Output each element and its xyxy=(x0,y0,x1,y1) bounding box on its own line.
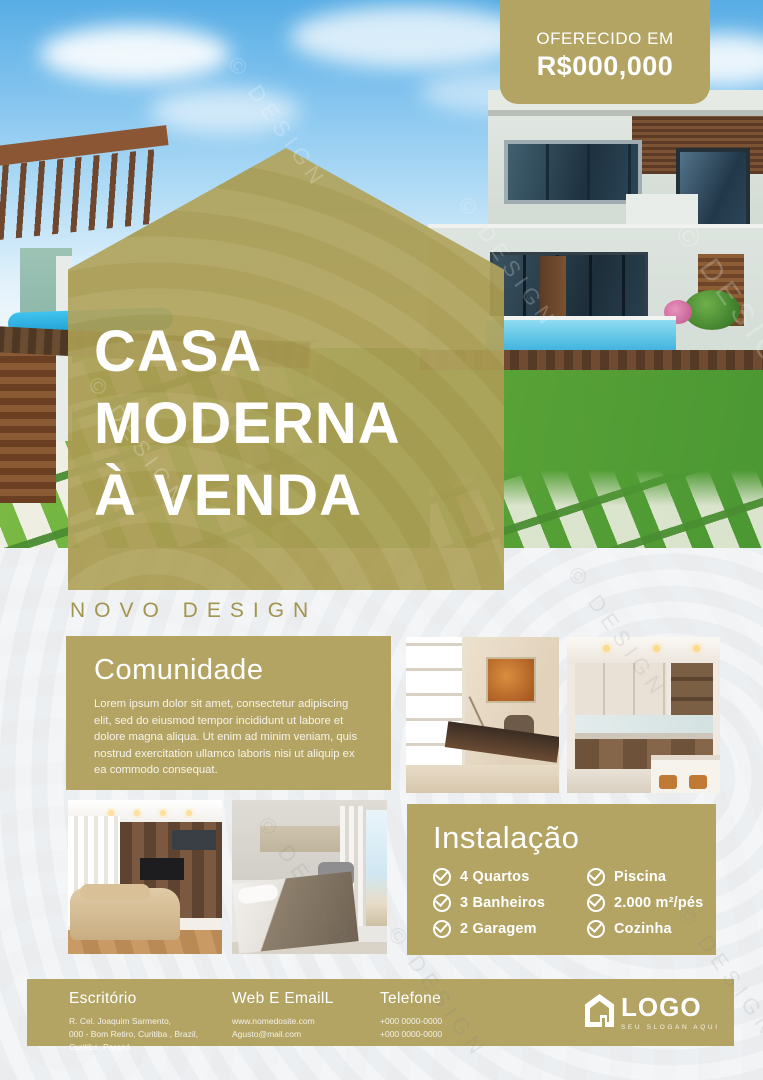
spotlight xyxy=(134,810,140,816)
ceiling-light xyxy=(603,645,610,652)
open-shelves xyxy=(671,663,713,721)
ceiling-light xyxy=(693,645,700,652)
bush xyxy=(684,290,740,330)
section-label: NOVO DESIGN xyxy=(70,599,317,623)
logo-text: LOGO SEU SLOGAN AQUI xyxy=(621,994,720,1031)
website-url: www.nomedosite.com xyxy=(232,1015,334,1028)
footer-contact-bar: Escritório R. Cel. Joaquim Sarmento, 000… xyxy=(27,979,734,1046)
logo-name: LOGO xyxy=(621,994,720,1020)
office-photo xyxy=(406,637,559,793)
phone-number: +000 0000-0000 xyxy=(380,1015,442,1028)
cloud xyxy=(150,88,300,134)
feature-list: 4 Quartos 3 Banheiros 2 Garagem Piscina xyxy=(433,868,716,938)
floor xyxy=(406,765,559,793)
logo-slogan: SEU SLOGAN AQUI xyxy=(621,1024,720,1031)
check-icon xyxy=(433,894,451,912)
cloud xyxy=(40,26,230,82)
footer-phone-column: Telefone +000 0000-0000 +000 0000-0000 xyxy=(380,990,442,1041)
office-address-line: R. Cel. Joaquim Sarmento, xyxy=(69,1015,198,1028)
price-badge: OFERECIDO EM R$000,000 xyxy=(500,0,710,104)
check-icon xyxy=(587,894,605,912)
kitchen-photo xyxy=(567,637,720,793)
spotlight xyxy=(186,810,192,816)
pergola-slats xyxy=(0,149,161,240)
feature-item: Cozinha xyxy=(587,920,703,938)
living-room-photo xyxy=(68,800,222,954)
comunidade-title: Comunidade xyxy=(94,654,363,687)
feature-item: 4 Quartos xyxy=(433,868,561,886)
balcony-window xyxy=(366,810,387,926)
email-address: Agusto@mail.com xyxy=(232,1028,334,1041)
check-icon xyxy=(433,920,451,938)
house-logo-icon xyxy=(585,994,614,1027)
feature-label: 2.000 m²/pés xyxy=(614,895,703,911)
sofa-cushions xyxy=(80,884,150,900)
bar-stool xyxy=(689,775,707,789)
backsplash xyxy=(575,715,713,733)
footer-web-title: Web E EmailL xyxy=(232,990,334,1008)
instalacao-title: Instalação xyxy=(433,820,716,856)
real-estate-flyer: CASA MODERNA À VENDA OFERECIDO EM R$000,… xyxy=(0,0,763,1080)
feature-item: 3 Banheiros xyxy=(433,894,561,912)
check-icon xyxy=(587,920,605,938)
swimming-pool xyxy=(486,316,676,352)
feature-label: 4 Quartos xyxy=(460,869,530,885)
feature-label: Cozinha xyxy=(614,921,672,937)
feature-column-right: Piscina 2.000 m²/pés Cozinha xyxy=(587,868,703,938)
title-line-1: CASA xyxy=(94,316,401,388)
bedroom-photo xyxy=(232,800,387,954)
tv-screen xyxy=(140,858,184,880)
comunidade-section: Comunidade Lorem ipsum dolor sit amet, c… xyxy=(66,636,391,790)
upper-window-strip xyxy=(504,140,642,204)
spotlight xyxy=(160,810,166,816)
office-address-line: Curitiba, Paraná xyxy=(69,1041,198,1054)
ceiling-light xyxy=(653,645,660,652)
price-label: OFERECIDO EM xyxy=(500,29,710,49)
feature-label: Piscina xyxy=(614,869,666,885)
office-address-line: 000 - Bom Retiro, Curitiba , Brazil, xyxy=(69,1028,198,1041)
title-line-2: MODERNA xyxy=(94,388,401,460)
title-line-3: À VENDA xyxy=(94,460,401,532)
check-icon xyxy=(433,868,451,886)
feature-label: 3 Banheiros xyxy=(460,895,545,911)
headboard-niche xyxy=(260,826,346,852)
cloud xyxy=(290,6,530,68)
check-icon xyxy=(587,868,605,886)
wall-niche xyxy=(172,830,216,850)
feature-item: 2 Garagem xyxy=(433,920,561,938)
footer-office-column: Escritório R. Cel. Joaquim Sarmento, 000… xyxy=(69,990,198,1055)
instalacao-section: Instalação 4 Quartos 3 Banheiros 2 Garag… xyxy=(407,804,716,955)
feature-item: 2.000 m²/pés xyxy=(587,894,703,912)
flyer-title: CASA MODERNA À VENDA xyxy=(94,316,401,532)
footer-office-title: Escritório xyxy=(69,990,198,1008)
wall-art xyxy=(488,659,534,701)
comunidade-body: Lorem ipsum dolor sit amet, consectetur … xyxy=(94,696,363,779)
price-value: R$000,000 xyxy=(500,51,710,82)
footer-web-column: Web E EmailL www.nomedosite.com Agusto@m… xyxy=(232,990,334,1041)
company-logo: LOGO SEU SLOGAN AQUI xyxy=(585,994,720,1031)
feature-label: 2 Garagem xyxy=(460,921,537,937)
upper-cabinets xyxy=(575,663,667,715)
bed xyxy=(232,871,359,953)
feature-column-left: 4 Quartos 3 Banheiros 2 Garagem xyxy=(433,868,561,938)
bar-stool xyxy=(659,775,677,789)
phone-number: +000 0000-0000 xyxy=(380,1028,442,1041)
feature-item: Piscina xyxy=(587,868,703,886)
footer-phone-title: Telefone xyxy=(380,990,442,1008)
